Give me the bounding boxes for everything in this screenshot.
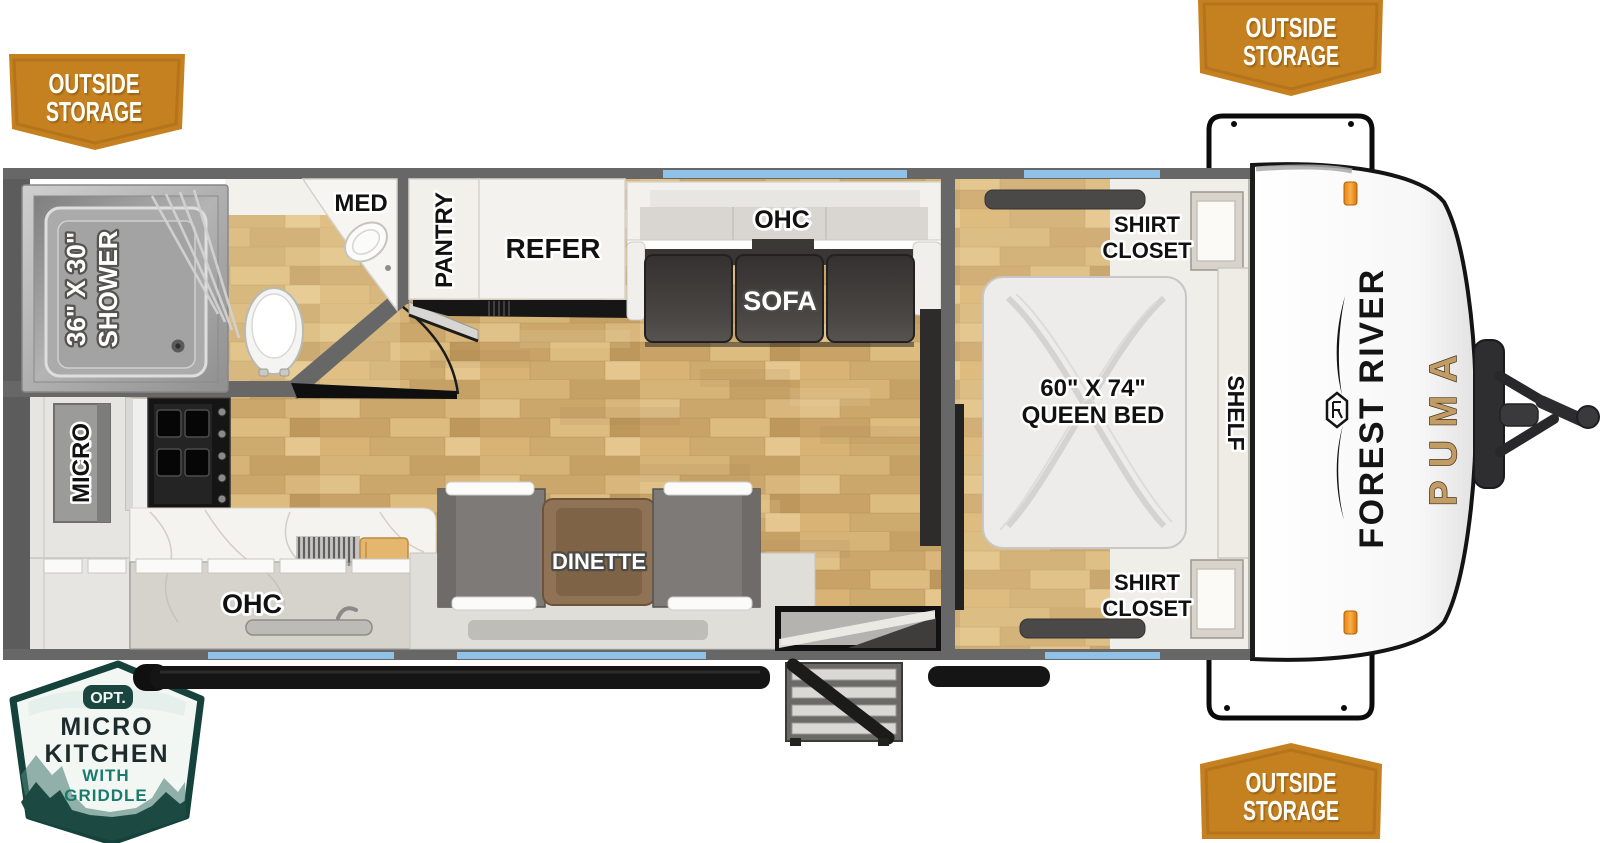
svg-text:GRIDDLE: GRIDDLE	[64, 786, 148, 805]
svg-text:MICRO: MICRO	[60, 713, 153, 741]
svg-text:OUTSIDE: OUTSIDE	[1246, 767, 1337, 798]
svg-text:REFER: REFER	[506, 233, 601, 264]
svg-text:OPT.: OPT.	[90, 690, 126, 707]
svg-text:PUMA: PUMA	[1423, 342, 1465, 506]
svg-text:CLOSET: CLOSET	[1102, 596, 1192, 621]
svg-text:PANTRY: PANTRY	[431, 192, 458, 288]
svg-text:MED: MED	[334, 190, 387, 217]
svg-text:SHELF: SHELF	[1223, 375, 1249, 450]
svg-text:QUEEN BED: QUEEN BED	[1022, 402, 1165, 429]
svg-text:STORAGE: STORAGE	[1243, 40, 1339, 71]
svg-text:36" X 30": 36" X 30"	[61, 232, 91, 346]
svg-text:STORAGE: STORAGE	[46, 96, 142, 127]
svg-text:OUTSIDE: OUTSIDE	[1246, 12, 1337, 43]
svg-text:STORAGE: STORAGE	[1243, 795, 1339, 826]
svg-text:WITH: WITH	[82, 766, 129, 785]
svg-text:DINETTE: DINETTE	[552, 549, 646, 574]
svg-text:KITCHEN: KITCHEN	[44, 740, 169, 768]
svg-text:OHC: OHC	[222, 589, 282, 619]
svg-text:SHIRT: SHIRT	[1114, 212, 1181, 237]
svg-text:60" X 74": 60" X 74"	[1040, 375, 1146, 402]
svg-text:FOREST RIVER: FOREST RIVER	[1353, 267, 1391, 548]
svg-text:MICRO: MICRO	[68, 423, 95, 503]
svg-text:OUTSIDE: OUTSIDE	[49, 68, 140, 99]
svg-text:OHC: OHC	[754, 206, 810, 234]
svg-text:SOFA: SOFA	[743, 286, 817, 316]
svg-text:SHOWER: SHOWER	[93, 230, 123, 347]
svg-text:SHIRT: SHIRT	[1114, 570, 1181, 595]
svg-text:CLOSET: CLOSET	[1102, 238, 1192, 263]
